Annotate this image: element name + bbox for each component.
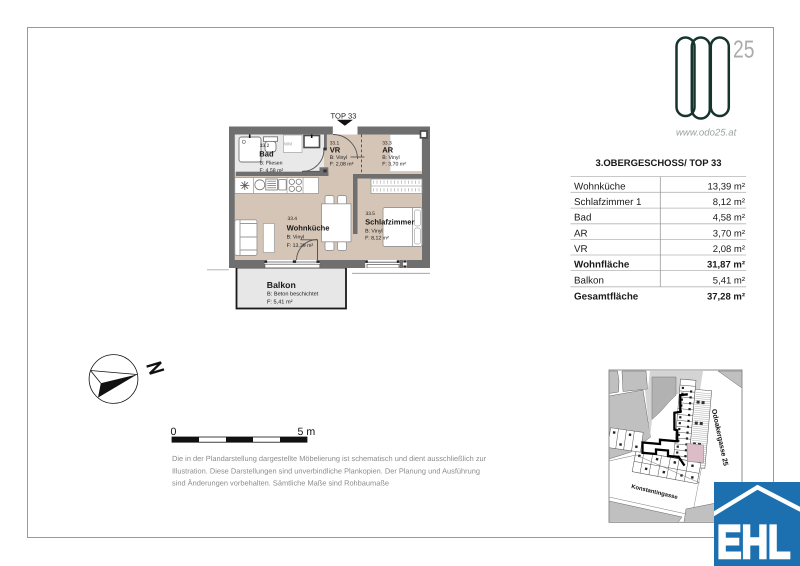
svg-text:EHL: EHL: [717, 515, 791, 566]
svg-text:F: 4,58 m²: F: 4,58 m²: [260, 168, 284, 174]
svg-text:8,12 m²: 8,12 m²: [713, 197, 745, 208]
svg-text:33.2: 33.2: [260, 143, 270, 149]
svg-text:Wohnfläche: Wohnfläche: [574, 260, 630, 271]
svg-text:4,58 m²: 4,58 m²: [713, 213, 745, 224]
svg-text:F: 8,12 m²: F: 8,12 m²: [365, 236, 389, 242]
svg-text:Schlafzimmer: Schlafzimmer: [365, 217, 414, 226]
svg-text:sind Änderungen vorbehalten. S: sind Änderungen vorbehalten. Sämtliche M…: [172, 479, 389, 488]
svg-text:25: 25: [733, 36, 755, 63]
svg-text:B: Beton beschichtet: B: Beton beschichtet: [267, 291, 319, 298]
svg-text:TOP 33: TOP 33: [331, 111, 357, 120]
svg-text:F: 3,70 m²: F: 3,70 m²: [382, 162, 406, 168]
svg-text:33.5: 33.5: [366, 211, 376, 217]
svg-text:B: Vinyl: B: Vinyl: [287, 234, 305, 240]
svg-text:5 m: 5 m: [298, 426, 316, 438]
svg-text:0: 0: [171, 426, 177, 438]
svg-text:AR: AR: [382, 145, 393, 154]
svg-text:Balkon: Balkon: [267, 280, 296, 290]
svg-text:37,28 m²: 37,28 m²: [707, 291, 745, 302]
svg-text:3,70 m²: 3,70 m²: [713, 228, 745, 239]
svg-text:B: Vinyl: B: Vinyl: [365, 229, 383, 235]
svg-text:Schlafzimmer 1: Schlafzimmer 1: [574, 197, 642, 208]
svg-text:F: 13,39 m²: F: 13,39 m²: [287, 243, 314, 249]
svg-text:B: Vinyl: B: Vinyl: [330, 155, 348, 161]
svg-text:13,39 m²: 13,39 m²: [708, 181, 746, 192]
svg-text:5,41 m²: 5,41 m²: [713, 275, 745, 286]
svg-text:31,87 m²: 31,87 m²: [707, 260, 745, 271]
svg-text:VR: VR: [574, 244, 588, 255]
svg-text:33.4: 33.4: [288, 216, 298, 222]
svg-text:Wohnküche: Wohnküche: [287, 223, 330, 232]
svg-text:F: 5,41 m²: F: 5,41 m²: [267, 300, 293, 306]
svg-text:www.odo25.at: www.odo25.at: [676, 128, 737, 139]
svg-text:Wohnküche: Wohnküche: [574, 181, 626, 192]
svg-text:Bad: Bad: [574, 213, 591, 224]
svg-text:Illustration. Diese Darstellun: Illustration. Diese Darstellungen sind u…: [172, 466, 480, 475]
svg-text:Die in der Plandarstellung dar: Die in der Plandarstellung dargestellte …: [172, 454, 487, 463]
svg-text:B: Fliesen: B: Fliesen: [260, 160, 283, 166]
svg-text:VR: VR: [330, 145, 341, 154]
svg-text:2,08 m²: 2,08 m²: [713, 244, 745, 255]
svg-text:F: 2,08 m²: F: 2,08 m²: [330, 162, 354, 168]
svg-text:Balkon: Balkon: [574, 275, 604, 286]
svg-text:3.OBERGESCHOSS/ TOP 33: 3.OBERGESCHOSS/ TOP 33: [595, 158, 721, 169]
svg-text:WM: WM: [284, 142, 292, 147]
svg-text:Bad: Bad: [259, 149, 274, 158]
svg-text:Gesamtfläche: Gesamtfläche: [574, 291, 639, 302]
svg-text:AR: AR: [574, 228, 588, 239]
svg-text:B: Vinyl: B: Vinyl: [382, 155, 400, 161]
